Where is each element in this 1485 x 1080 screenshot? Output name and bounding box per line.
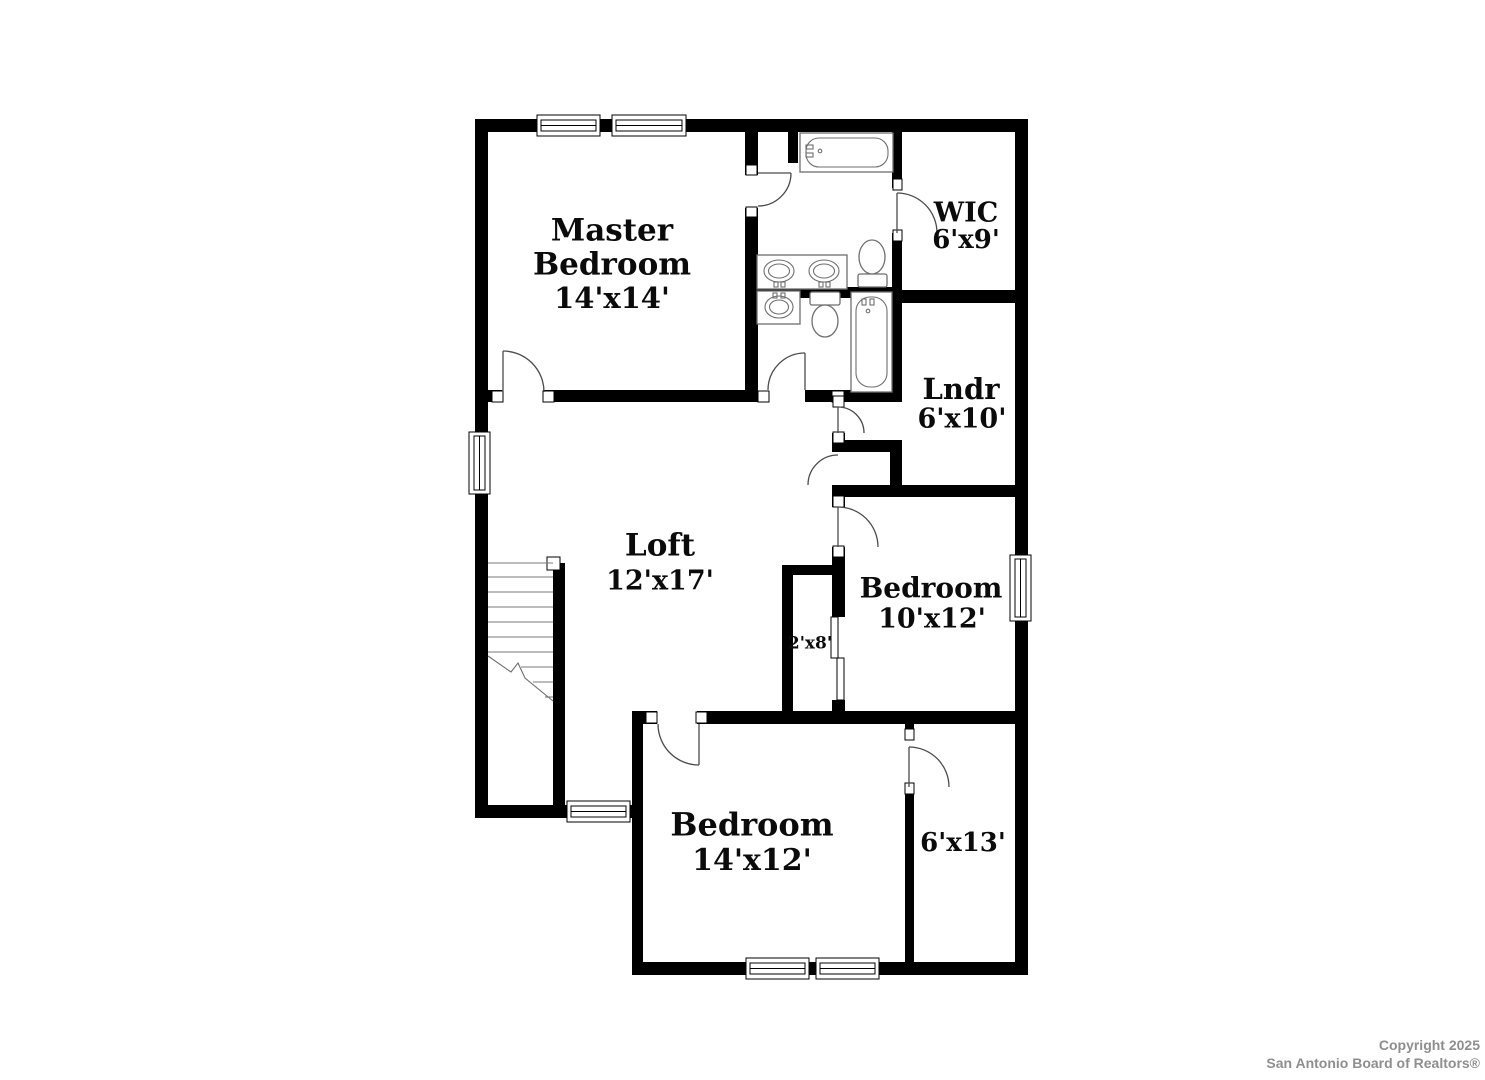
room-name: Loft (625, 528, 696, 564)
room-dims: 6'x13' (920, 828, 1006, 858)
label-master-bedroom: Master Bedroom 14'x14' (533, 213, 691, 316)
label-loft: Loft 12'x17' (606, 528, 714, 597)
room-dims: 14'x12' (692, 843, 812, 878)
label-wic: WIC 6'x9' (932, 198, 1000, 256)
stair-break-line (488, 656, 553, 701)
window-bedroom-bottom-2 (816, 958, 879, 979)
room-dims: 12'x17' (606, 566, 714, 597)
window-master-1 (537, 115, 600, 136)
sink-icon (757, 291, 800, 324)
window-stairwell (567, 801, 630, 822)
fixtures (757, 133, 893, 392)
room-dims: 2'x8' (788, 634, 832, 654)
double-vanity-sink-icon (757, 255, 847, 289)
room-name: WIC (933, 198, 998, 229)
room-name: Lndr (922, 372, 1000, 406)
label-bedroom-right: Bedroom 10'x12' (860, 572, 1003, 635)
door-master-bath (758, 173, 791, 206)
room-name: Bedroom (860, 572, 1003, 605)
window-left-wall (469, 432, 490, 494)
toilet-icon (858, 240, 887, 287)
closet-sliding-doors (831, 617, 844, 700)
door-bonus-room (909, 747, 949, 787)
label-laundry: Lndr 6'x10' (918, 372, 1007, 435)
window-bedroom-bottom-1 (746, 958, 809, 979)
copyright-watermark: Copyright 2025 San Antonio Board of Real… (1266, 1036, 1480, 1072)
door-bedroom-bottom (658, 724, 699, 765)
label-closet: 2'x8' (788, 634, 832, 654)
door-laundry (838, 407, 864, 433)
bathtub-icon (851, 292, 892, 392)
door-wic (897, 193, 937, 233)
bathtub-icon (800, 133, 893, 172)
door-linen-nook (808, 455, 838, 485)
staircase (488, 563, 553, 701)
room-name: Bedroom (670, 806, 833, 844)
copyright-line2: San Antonio Board of Realtors® (1266, 1054, 1480, 1072)
room-dims: 14'x14' (554, 281, 670, 315)
room-dims: 6'x9' (932, 225, 1000, 255)
door-hall-bath (768, 353, 805, 390)
door-master-bedroom (503, 351, 544, 392)
label-bedroom-bottom: Bedroom 14'x12' (670, 806, 833, 879)
window-right-wall (1010, 555, 1031, 621)
room-dims: 6'x10' (918, 404, 1007, 435)
floor-plan-page: Master Bedroom 14'x14' WIC 6'x9' Lndr 6'… (0, 0, 1485, 1080)
window-master-2 (612, 115, 686, 136)
floor-plan-canvas: Master Bedroom 14'x14' WIC 6'x9' Lndr 6'… (0, 0, 1485, 1080)
room-name: Master (551, 213, 674, 249)
copyright-line1: Copyright 2025 (1266, 1036, 1480, 1054)
door-bedroom-right (838, 507, 878, 547)
label-bonus-room: 6'x13' (920, 828, 1006, 858)
room-name: Bedroom (533, 247, 691, 283)
toilet-icon (810, 292, 840, 337)
room-dims: 10'x12' (878, 604, 986, 635)
